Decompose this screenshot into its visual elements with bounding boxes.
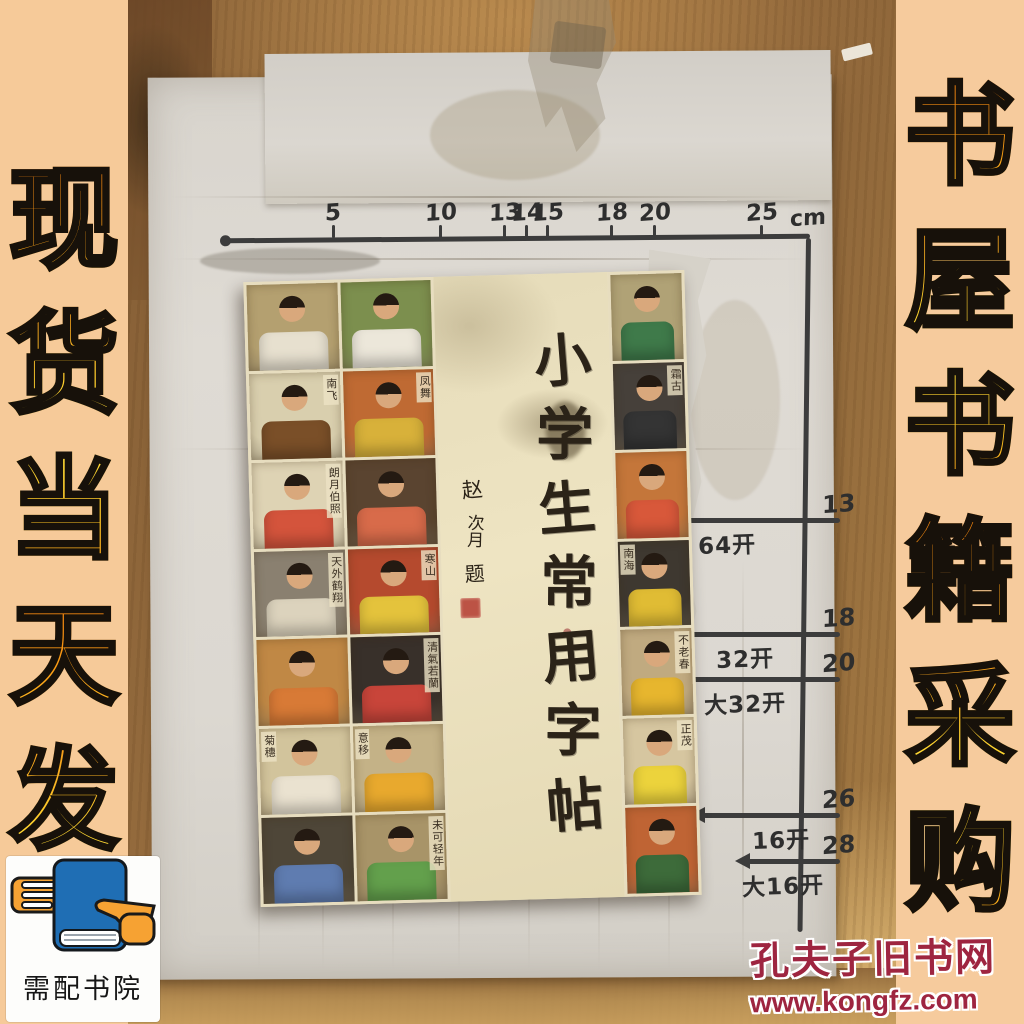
- child-figure-head: [375, 382, 402, 409]
- banner-character: 屋: [896, 209, 1024, 354]
- paper-joint-line: [170, 196, 810, 198]
- ruler-tick-label: 25: [746, 199, 776, 227]
- paper-stain: [690, 300, 780, 500]
- dimension-line: [688, 518, 840, 523]
- cover-photo-cell: 南飞: [249, 371, 342, 459]
- cover-photo-cell: 天外鹤翔: [254, 549, 347, 637]
- cover-photo-cell: 正茂: [623, 717, 696, 805]
- child-figure-clothes: [352, 328, 422, 368]
- photo-calligraphy-text: 正茂: [677, 720, 692, 750]
- child-figure-clothes: [620, 321, 675, 360]
- banner-character: 书: [896, 354, 1024, 499]
- cover-photo-cell: 凤舞: [342, 369, 435, 457]
- banner-character: 当: [0, 438, 128, 583]
- child-figure-clothes: [628, 588, 683, 627]
- right-promo-banner: 书屋书籍采购: [896, 0, 1024, 1024]
- photo-calligraphy-text: 清氣若蘭: [424, 638, 440, 692]
- dimension-cm-label: 28: [822, 830, 856, 860]
- photo-calligraphy-text: 朗月伯照: [325, 463, 341, 517]
- photo-calligraphy-text: 寒山: [421, 550, 436, 580]
- photo-calligraphy-text: 天外鹤翔: [328, 552, 344, 606]
- title-character: 学: [526, 399, 605, 474]
- banner-character: 天: [0, 584, 128, 729]
- dimension-line: [678, 677, 840, 682]
- photo-calligraphy-text: 意移: [354, 729, 369, 759]
- child-figure-head: [294, 829, 321, 856]
- child-figure-head: [291, 740, 318, 767]
- child-figure-head: [633, 286, 660, 313]
- title-character: 小: [521, 322, 605, 402]
- ruler-unit-label: cm: [790, 205, 826, 233]
- child-figure-head: [377, 471, 404, 498]
- dimension-arrow: [735, 853, 750, 869]
- ruler-tick-mark: [332, 225, 335, 238]
- child-figure-clothes: [269, 686, 339, 726]
- child-figure-head: [387, 826, 414, 853]
- format-size-label: 16开: [751, 820, 810, 856]
- dimension-line: [703, 813, 840, 818]
- kongfz-watermark: 孔夫子旧书网 www.kongfz.com: [750, 928, 1024, 1017]
- child-figure-clothes: [623, 410, 678, 449]
- banner-character: 发: [0, 729, 128, 874]
- cover-photo-cell: [345, 458, 438, 546]
- right-banner-text: 书屋书籍采购: [896, 64, 1024, 935]
- cover-photo-cell: [625, 806, 698, 894]
- banner-character: 货: [0, 293, 128, 438]
- child-figure-head: [641, 552, 668, 579]
- ruler-tick-label: 10: [425, 199, 455, 227]
- format-size-label: 大16开: [741, 866, 824, 903]
- title-character: 生: [525, 471, 609, 551]
- photo-calligraphy-text: 南飞: [323, 375, 338, 405]
- tape-piece: [549, 21, 606, 70]
- dimension-cm-label: 20: [822, 648, 856, 678]
- cover-photo-cell: 未可轻年: [355, 813, 448, 901]
- bookstore-name: 需配书院: [6, 967, 160, 1006]
- inscription-text: 题: [457, 557, 493, 588]
- ruler-tick-mark: [503, 225, 506, 238]
- ruler-tick-mark: [546, 225, 549, 238]
- child-figure-head: [286, 562, 313, 589]
- ruler-tick-mark: [610, 225, 613, 238]
- child-figure-head: [646, 730, 673, 757]
- book-listing-photo: cm 510131415182025 1364开1832开20大32开2616开…: [0, 0, 1024, 1024]
- book-in-hands-icon: [8, 856, 158, 960]
- child-figure-clothes: [259, 331, 329, 371]
- child-figure-clothes: [360, 595, 430, 635]
- photo-calligraphy-text: 不老春: [675, 631, 691, 673]
- photo-calligraphy-text: 霜古: [667, 365, 682, 395]
- child-figure-head: [281, 384, 308, 411]
- banner-character: 采: [896, 645, 1024, 790]
- paper-stain: [200, 248, 380, 274]
- watermark-site-url: www.kongfz.com: [750, 983, 1024, 1020]
- ruler-tick-mark: [760, 225, 763, 238]
- cover-photo-cell: 意移: [352, 724, 445, 812]
- child-figure-head: [636, 374, 663, 401]
- cover-photo-cell: 霜古: [613, 362, 686, 450]
- child-figure-clothes: [266, 598, 336, 638]
- child-figure-clothes: [633, 765, 688, 804]
- format-size-label: 32开: [715, 639, 774, 675]
- banner-character: 籍: [896, 500, 1024, 645]
- child-figure-head: [638, 463, 665, 490]
- cover-photo-cell: [261, 816, 354, 904]
- format-size-label: 大32开: [703, 684, 786, 721]
- photo-calligraphy-text: 未可轻年: [429, 816, 445, 870]
- watermark-site-name: 孔夫子旧书网: [750, 926, 1024, 987]
- bookstore-logo: 需配书院: [6, 856, 160, 1022]
- child-figure-clothes: [625, 499, 680, 538]
- photo-calligraphy-text: 凤舞: [416, 372, 431, 402]
- cover-photo-cell: [256, 638, 349, 726]
- cover-photo-cell: [610, 273, 683, 361]
- dimension-cm-label: 26: [822, 784, 856, 814]
- child-figure-head: [279, 296, 306, 323]
- child-figure-head: [284, 473, 311, 500]
- banner-character: 购: [896, 790, 1024, 935]
- child-figure-clothes: [367, 861, 437, 901]
- dimension-cm-label: 18: [822, 603, 856, 633]
- child-figure-clothes: [271, 775, 341, 815]
- child-figure-clothes: [274, 864, 344, 904]
- child-figure-clothes: [264, 509, 334, 549]
- cover-photo-cell: 朗月伯照: [251, 460, 344, 548]
- ruler-tick-label: 18: [596, 199, 626, 227]
- cover-photo-cell: [246, 283, 339, 371]
- title-character: 字: [534, 695, 613, 770]
- paper-stain: [430, 90, 600, 180]
- cover-photo-cell: 寒山: [347, 547, 440, 635]
- book-cover: 南飞凤舞朗月伯照天外鹤翔寒山清氣若蘭菊穗意移未可轻年 小学生常用字帖 赵次月题 …: [243, 270, 701, 907]
- cover-photo-cell: 南海: [618, 540, 691, 628]
- dimension-cm-label: 13: [822, 489, 856, 519]
- photo-calligraphy-text: 南海: [620, 544, 635, 574]
- calligrapher-seal: [460, 598, 481, 619]
- ruler-tick-mark: [653, 225, 656, 238]
- calligrapher-inscription: 赵次月题: [455, 474, 492, 598]
- ruler-tick-label: 15: [532, 199, 562, 227]
- left-banner-text: 现货当天发: [0, 148, 128, 874]
- ruler-tick-label: 20: [639, 199, 669, 227]
- cover-photo-cell: 不老春: [620, 628, 693, 716]
- child-figure-clothes: [261, 420, 331, 460]
- cover-photo-cell: 清氣若蘭: [350, 635, 443, 723]
- child-figure-clothes: [635, 854, 690, 893]
- child-figure-head: [372, 293, 399, 320]
- ruler-tick-mark: [525, 225, 528, 238]
- book-title-calligraphy: 小学生常用字帖: [523, 324, 615, 845]
- ruler-tick-mark: [439, 225, 442, 238]
- title-character: 常: [530, 547, 609, 622]
- cover-photo-cell: [340, 280, 433, 368]
- banner-character: 书: [896, 64, 1024, 209]
- format-size-label: 64开: [697, 525, 756, 561]
- title-character: 用: [529, 619, 613, 699]
- child-figure-clothes: [362, 684, 432, 724]
- child-figure-head: [380, 559, 407, 586]
- book-title-panel: 小学生常用字帖 赵次月题: [433, 272, 624, 902]
- photo-calligraphy-text: 菊穗: [261, 732, 276, 762]
- child-figure-clothes: [630, 677, 685, 716]
- child-figure-head: [648, 819, 675, 846]
- child-figure-clothes: [357, 506, 427, 546]
- dimension-line: [678, 632, 840, 637]
- child-figure-head: [289, 651, 316, 678]
- cover-photo-cell: 菊穗: [259, 727, 352, 815]
- child-figure-clothes: [355, 417, 425, 457]
- title-character: 帖: [533, 767, 617, 847]
- child-figure-head: [643, 641, 670, 668]
- inscription-text: 次月: [460, 514, 486, 549]
- child-figure-head: [385, 737, 412, 764]
- ruler-tick-label: 5: [318, 199, 348, 227]
- cover-photo-cell: [615, 451, 688, 539]
- cover-photo-grid-left: 南飞凤舞朗月伯照天外鹤翔寒山清氣若蘭菊穗意移未可轻年: [243, 277, 450, 907]
- banner-character: 现: [0, 148, 128, 293]
- paper-crease: [742, 560, 744, 970]
- child-figure-head: [382, 648, 409, 675]
- child-figure-clothes: [365, 773, 435, 813]
- inscription-text: 赵: [454, 472, 491, 505]
